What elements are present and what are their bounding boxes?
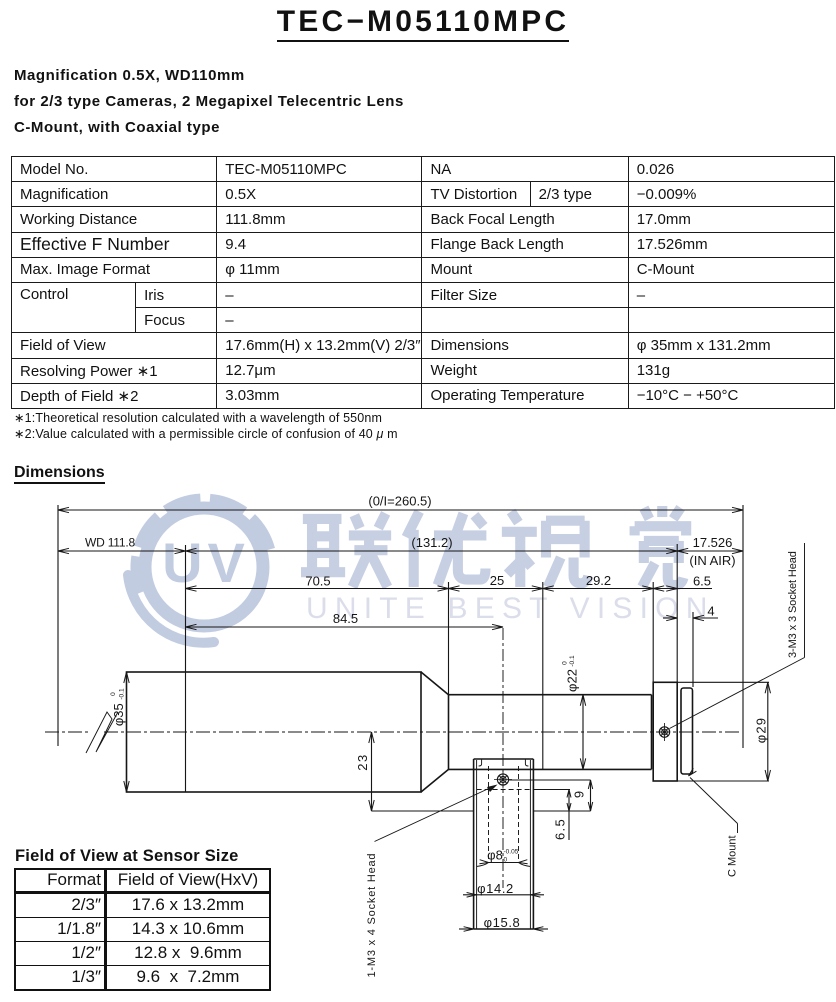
- svg-text:4: 4: [707, 604, 714, 619]
- svg-text:(131.2): (131.2): [411, 535, 452, 550]
- svg-text:3-M3 x 3 Socket Head: 3-M3 x 3 Socket Head: [787, 551, 799, 658]
- svg-text:70.5: 70.5: [305, 574, 330, 589]
- svg-text:φ35: φ35: [111, 703, 126, 726]
- svg-text:17.526: 17.526: [693, 535, 733, 550]
- svg-text:(0/I=260.5): (0/I=260.5): [368, 494, 431, 509]
- svg-text:C Mount: C Mount: [727, 835, 739, 877]
- svg-text:UV: UV: [162, 531, 250, 594]
- svg-text:0: 0: [110, 692, 117, 696]
- svg-text:-0.1: -0.1: [119, 688, 126, 700]
- svg-text:-0.05: -0.05: [504, 849, 519, 856]
- svg-text:9: 9: [572, 791, 587, 798]
- svg-text:φ29: φ29: [754, 717, 769, 744]
- svg-text:25: 25: [490, 573, 504, 588]
- svg-text:φ15.8: φ15.8: [484, 915, 521, 930]
- svg-text:-0.1: -0.1: [569, 655, 576, 667]
- svg-text:0: 0: [504, 857, 508, 864]
- svg-text:φ8: φ8: [487, 848, 503, 863]
- svg-text:6.5: 6.5: [693, 574, 711, 589]
- svg-text:WD 111.8: WD 111.8: [85, 536, 136, 550]
- svg-text:23: 23: [355, 753, 370, 770]
- svg-text:0: 0: [562, 661, 569, 665]
- svg-text:1-M3 x 4 Socket Head: 1-M3 x 4 Socket Head: [366, 853, 378, 978]
- svg-text:29.2: 29.2: [586, 573, 611, 588]
- svg-text:(IN AIR): (IN AIR): [689, 553, 735, 568]
- svg-text:84.5: 84.5: [333, 611, 358, 626]
- svg-text:φ14.2: φ14.2: [477, 881, 514, 896]
- svg-text:φ22: φ22: [565, 669, 580, 692]
- svg-text:6.5: 6.5: [553, 818, 568, 840]
